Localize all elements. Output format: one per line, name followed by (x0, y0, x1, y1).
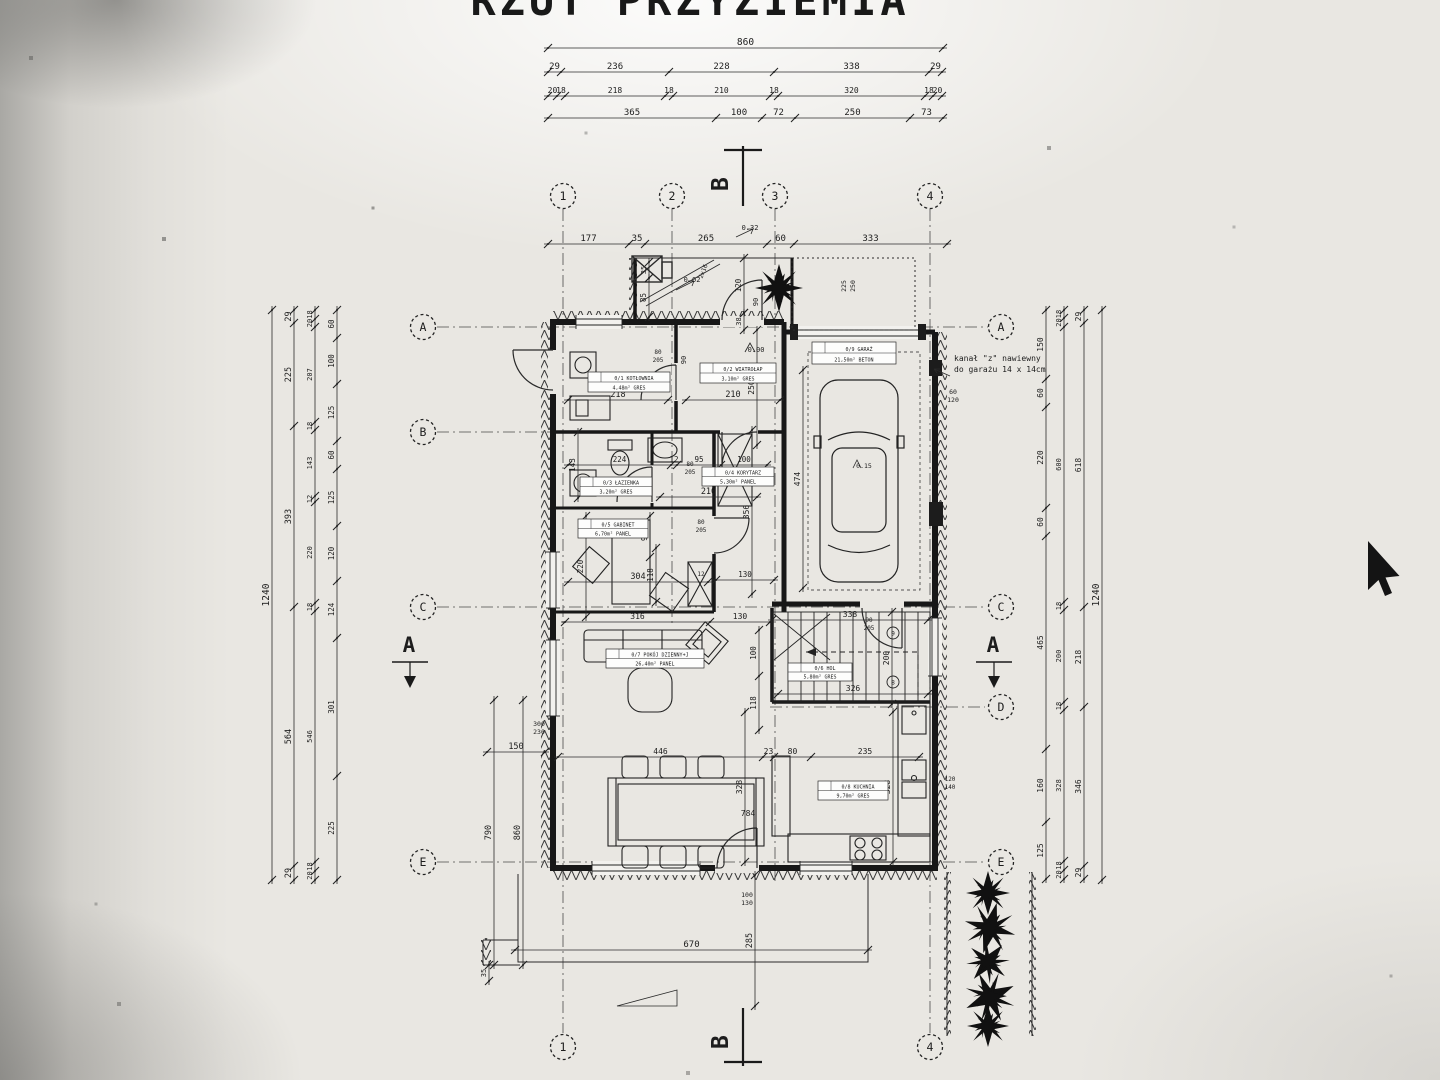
dim-label: 60 (775, 234, 786, 244)
dim-label: 356 (742, 505, 751, 520)
dim-node (1045, 507, 1047, 509)
room-label: 0/7 POKÓJ DZIENNY+J26,40m² PANEL (606, 649, 704, 668)
dim-label: 18 (306, 603, 314, 611)
dim-chain: 316130 (561, 612, 774, 626)
room-area: 5,30m² PANEL (720, 480, 756, 486)
dim-label: 465 (1036, 635, 1045, 650)
dim-node (314, 318, 316, 320)
dim-node (667, 399, 669, 401)
grid-bubble-label: 4 (927, 1040, 934, 1054)
dim-label: 207 (306, 368, 314, 381)
dim-node (1045, 406, 1047, 408)
dim-node (743, 312, 745, 314)
dim-node (271, 879, 273, 881)
dim-chain: 1240 (1091, 306, 1106, 884)
dim-label: 546 (306, 730, 314, 743)
dim-label: 210 (714, 86, 729, 95)
dim-node (891, 611, 893, 613)
dim-node (522, 699, 524, 701)
window-south-kitchen (800, 861, 852, 875)
dim-node (314, 870, 316, 872)
room-label: 0/2 WIATROŁAP3,10m² GRES (700, 363, 776, 383)
room-area: 3,20m² GRES (599, 490, 632, 496)
dim-node (547, 95, 549, 97)
dim-node (779, 399, 781, 401)
dim-label: 95 (694, 455, 703, 464)
dim-label: 210 (725, 390, 740, 400)
dim-label: 125 (327, 491, 336, 505)
dim-node (754, 874, 756, 876)
dim-label: 125 (1036, 843, 1045, 858)
grid-bubble-label: 4 (927, 189, 934, 203)
dim-node (941, 95, 943, 97)
dim-node (1083, 309, 1085, 311)
dim-chain: 328 (735, 708, 749, 866)
dim-label: 20 (1055, 870, 1063, 878)
dim-node (1063, 860, 1065, 862)
office-chair-2 (650, 573, 689, 612)
room-area: 9,70m² GRES (836, 794, 869, 800)
annotation-label: 80 (686, 461, 694, 468)
dim-node (946, 243, 948, 245)
dim-node (793, 243, 795, 245)
dim-label: 120 (327, 546, 336, 560)
dim-label: 100 (327, 354, 336, 368)
dim-label: 200 (1055, 650, 1063, 663)
annotation-label: 300 (533, 720, 545, 728)
annotation-label: 250 (849, 280, 857, 292)
dim-node (664, 95, 666, 97)
section-letter: A (987, 633, 1000, 657)
dim-label: 29 (284, 311, 294, 321)
dim-node (314, 501, 316, 503)
dim-label: 790 (484, 825, 494, 840)
dim-label: 150 (1036, 337, 1045, 352)
dim-chain: 1240 (261, 306, 276, 884)
dim-label: 12 (306, 495, 314, 503)
grid-bubble: A (989, 315, 1014, 340)
annotation-label: 225 (840, 280, 848, 292)
annotation-label: 80 (654, 349, 662, 356)
dim-label: 100 (737, 455, 751, 464)
grid-bubble-label: A (420, 320, 427, 334)
dim-node (493, 964, 495, 966)
dim-label: 333 (862, 234, 878, 244)
dim-chain: 201821818210183201820 (544, 86, 946, 100)
room-label: 0/4 KORYTARZ5,30m² PANEL (702, 467, 774, 486)
dim-node (761, 117, 763, 119)
annotation-label: 205 (696, 527, 707, 534)
dim-node (293, 425, 295, 427)
window-west-office (546, 552, 560, 608)
dim-label: 474 (793, 472, 802, 487)
dining-chairs (622, 756, 724, 868)
dim-node (336, 637, 338, 639)
cabinet-x (688, 562, 712, 606)
dim-label: 18 (306, 862, 314, 870)
dim-node (1063, 609, 1065, 611)
dim-node (514, 949, 516, 951)
grid-bubble: 4 (918, 184, 943, 209)
garage-gate (798, 326, 918, 339)
dim-chain: 2961821834629 (1074, 306, 1088, 883)
dim-label: 564 (284, 729, 294, 744)
dim-node (715, 579, 717, 581)
section-letter: A (403, 633, 416, 657)
dim-label: 670 (683, 940, 699, 950)
annotation-label: 205 (864, 625, 875, 632)
dim-label: 320 (844, 86, 859, 95)
dim-node (564, 95, 566, 97)
dim-chain: 182060018200183281820 (1055, 306, 1068, 883)
dim-node (567, 581, 569, 583)
room-label: 0/5 GABINET6,70m² PANEL (578, 519, 648, 538)
room-area: 3,10m² GRES (721, 377, 754, 383)
dim-node (1063, 601, 1065, 603)
conifer-entry (755, 264, 803, 312)
dim-node (766, 243, 768, 245)
dim-node (777, 693, 779, 695)
dim-node (1063, 709, 1065, 711)
dim-label: 35 (480, 969, 488, 977)
dim-node (744, 861, 746, 863)
dim-node (927, 619, 929, 621)
grid-bubble-label: E (420, 855, 427, 869)
generated-annotations: 8602923622833829201821818210183201820365… (261, 37, 1106, 1060)
dim-node (564, 621, 566, 623)
dim-node (1045, 821, 1047, 823)
dim-node (1083, 878, 1085, 880)
dim-chain: 2923622833829 (544, 62, 946, 76)
grid-bubble: E (989, 850, 1014, 875)
dim-node (773, 71, 775, 73)
dim-label: 160 (1036, 778, 1045, 793)
dim-label: 35 (640, 266, 648, 274)
dim-node (585, 616, 587, 618)
canopy-outline (792, 258, 915, 330)
grid-bubble-label: C (998, 600, 1005, 614)
dim-node (685, 399, 687, 401)
dim-node (314, 429, 316, 431)
dim-node (756, 329, 758, 331)
dim-node (756, 444, 758, 446)
dim-label: 100 (731, 108, 747, 118)
annotation-label: 100 (741, 891, 753, 899)
dim-node (336, 879, 338, 881)
chimney (632, 256, 672, 282)
dim-label: 18 (1055, 702, 1063, 710)
grid-bubble: C (989, 595, 1014, 620)
room-area: 21,50m² BETON (834, 358, 873, 364)
annotation-label: 0.02 (684, 276, 701, 284)
dim-node (709, 621, 711, 623)
dim-node (1083, 606, 1085, 608)
dim-node (668, 71, 670, 73)
dim-label: 18 (1055, 602, 1063, 610)
dim-node (1045, 378, 1047, 380)
dim-label: 60 (1036, 517, 1045, 527)
dim-label: 120 (734, 278, 743, 292)
dim-node (547, 243, 549, 245)
dim-node (744, 711, 746, 713)
dim-chain: 120 (734, 254, 748, 317)
dim-node (1083, 865, 1085, 867)
dim-node (314, 879, 316, 881)
dim-node (743, 329, 745, 331)
dim-label: 326 (846, 684, 861, 693)
dim-label: 130 (733, 612, 748, 621)
dim-label: 23 (764, 747, 774, 756)
dim-label: 18 (1055, 310, 1063, 318)
dim-node (336, 468, 338, 470)
dim-node (336, 580, 338, 582)
dim-node (672, 95, 674, 97)
dim-node (891, 703, 893, 705)
annotation-label: 230 (533, 728, 545, 736)
room-name: 0/5 GABINET (601, 523, 634, 529)
dim-label: 228 (713, 62, 729, 72)
dim-node (892, 861, 894, 863)
dim-chain: 1506022060465160125 (1036, 306, 1050, 883)
dim-label: 235 (858, 747, 873, 756)
dim-node (794, 117, 796, 119)
annotation-label: 9 (891, 631, 895, 638)
dim-label: 124 (327, 602, 336, 616)
dim-node (560, 71, 562, 73)
dim-node (802, 587, 804, 589)
dim-label: 210 (701, 487, 716, 497)
conifer-5 (967, 1005, 1009, 1047)
room-label: 0/9 GARAŻ21,50m² BETON (812, 342, 896, 364)
room-area: 5,80m² GRES (803, 675, 836, 681)
dim-node (751, 593, 753, 595)
dim-node (754, 1005, 756, 1007)
dim-node (649, 515, 651, 517)
dim-node (577, 497, 579, 499)
dim-label: 225 (327, 821, 336, 835)
room-label: 0/1 KOTŁOWNIA4,48m² GRES (588, 372, 670, 392)
grid-bubble: 1 (551, 184, 576, 209)
dim-node (557, 756, 559, 758)
dim-label: 118 (646, 568, 655, 582)
dim-label: 236 (607, 62, 623, 72)
dim-node (802, 369, 804, 371)
grid-bubble-label: 1 (560, 1040, 567, 1054)
section-letter: B (708, 1035, 734, 1049)
dim-chain: 670 (511, 940, 872, 954)
dim-label: 218 (1074, 650, 1083, 665)
dim-label: 20 (933, 86, 943, 95)
dim-node (941, 71, 943, 73)
dim-node (314, 326, 316, 328)
dim-node (655, 547, 657, 549)
dim-label: 860 (737, 37, 754, 48)
dim-node (1045, 748, 1047, 750)
dim-node (1063, 309, 1065, 311)
dim-label: 73 (921, 108, 932, 118)
dim-label: 393 (284, 509, 294, 524)
grid-bubble: D (989, 695, 1014, 720)
section-letter: B (708, 177, 734, 191)
annotation-label: 120 (945, 776, 956, 783)
annotation-label: 90 (752, 298, 760, 306)
dim-node (773, 579, 775, 581)
grid-bubble: 4 (918, 1035, 943, 1060)
annotation-label: 90 (865, 617, 873, 624)
dim-label: 285 (745, 933, 755, 948)
dim-label: 220 (306, 546, 314, 559)
dim-node (271, 309, 273, 311)
dim-node (648, 316, 650, 318)
dim-label: 446 (653, 747, 668, 756)
grid-bubble-label: D (998, 700, 1005, 714)
dim-label: 20 (306, 319, 314, 327)
dim-node (762, 756, 764, 758)
dim-node (628, 243, 630, 245)
dim-node (648, 277, 650, 279)
ramp-symbol (617, 990, 677, 1006)
dim-chain: 860 (544, 37, 947, 52)
fridge (902, 706, 926, 734)
grid-bubble-label: E (998, 855, 1005, 869)
grid-bubble: E (411, 850, 436, 875)
dim-node (1063, 326, 1065, 328)
dim-label: 72 (773, 108, 784, 118)
dim-label: 60 (1036, 388, 1045, 398)
dim-label: 18 (1055, 861, 1063, 869)
annotation-label: 8 (891, 680, 895, 687)
kitchen-sink (902, 760, 926, 798)
dim-node (707, 581, 709, 583)
dim-label: 118 (749, 696, 758, 710)
room-area: 26,40m² PANEL (635, 662, 674, 668)
dim-label: 346 (1074, 779, 1083, 794)
dim-node (676, 464, 678, 466)
dim-chain: 100118 (749, 626, 763, 734)
dim-node (1101, 309, 1103, 311)
dim-node (486, 751, 488, 753)
dim-label: 143 (568, 458, 577, 472)
annotation-label: 140 (945, 784, 956, 791)
dim-node (314, 602, 316, 604)
dim-node (867, 949, 869, 951)
dim-chain: 2922539356429 (284, 306, 298, 884)
dim-label: 220 (1036, 450, 1045, 465)
dim-label: 35 (632, 234, 643, 244)
dim-label: 316 (630, 612, 645, 621)
room-label: 0/3 ŁAZIENKA3,20m² GRES (580, 477, 652, 496)
room-area: 4,48m² GRES (612, 386, 645, 392)
dim-node (924, 95, 926, 97)
dim-label: 29 (1074, 312, 1083, 322)
dim-label: 18 (769, 86, 779, 95)
dim-node (336, 440, 338, 442)
dim-label: 130 (738, 570, 752, 579)
dim-label: 20 (306, 871, 314, 879)
dim-node (314, 861, 316, 863)
room-name: 0/3 ŁAZIENKA (603, 481, 639, 487)
dim-node (556, 95, 558, 97)
dim-label: 250 (844, 108, 860, 118)
dim-node (488, 980, 490, 982)
coffee-table (628, 668, 672, 712)
annotation-label: 0.32 (742, 224, 759, 232)
dim-node (771, 619, 773, 621)
grid-bubble: C (411, 595, 436, 620)
dim-label: 18 (306, 422, 314, 430)
annotation-label: 120 (947, 396, 959, 404)
room-label: 0/6 HOL5,80m² GRES (788, 663, 852, 681)
dim-node (577, 431, 579, 433)
room-label: 0/8 KUCHNIA9,70m² GRES (818, 781, 888, 800)
dim-label: 301 (327, 700, 336, 714)
room-name: 0/4 KORYTARZ (725, 471, 761, 477)
dim-label: 20 (1055, 318, 1063, 326)
dim-label: 220 (576, 559, 585, 573)
dim-node (1045, 878, 1047, 880)
grid-bubble: 2 (660, 184, 685, 209)
dim-chain: 18202071814312220185461820 (306, 306, 319, 884)
room-name: 0/8 KUCHNIA (841, 785, 874, 791)
annotation-label: 784 (741, 809, 756, 818)
grid-bubble-label: C (420, 600, 427, 614)
room-name: 0/2 WIATROŁAP (723, 367, 762, 373)
dim-label: 365 (624, 108, 640, 118)
dim-label: 265 (698, 234, 714, 244)
mouse-cursor (1368, 541, 1400, 596)
dim-node (758, 729, 760, 731)
dim-label: 143 (306, 457, 314, 470)
annotation-label: 12 (697, 571, 705, 578)
dim-node (644, 243, 646, 245)
dim-node (1045, 309, 1047, 311)
floor-plan-drawing: 8602923622833829201821818210183201820365… (0, 0, 1440, 1080)
dim-label: 328 (1055, 779, 1063, 792)
dim-node (766, 464, 768, 466)
dim-node (909, 117, 911, 119)
conifer-1 (966, 871, 1010, 915)
dim-chain: 150 (483, 742, 549, 756)
annotation-label: 0.00 (748, 346, 765, 354)
annotation-label: do garażu 14 x 14cm (954, 365, 1046, 374)
dim-label: 338 (843, 62, 859, 72)
dim-label: 338 (843, 610, 858, 619)
dim-label: 860 (513, 825, 523, 840)
dim-label: 38 (735, 317, 743, 325)
dim-node (336, 337, 338, 339)
dim-node (1101, 879, 1103, 881)
dim-chain: 200 (882, 608, 896, 708)
dim-node (715, 117, 717, 119)
dim-node (670, 464, 672, 466)
annotation-label: 90 (680, 356, 688, 364)
dim-chain: 1773526560333 (544, 234, 951, 248)
dim-node (942, 47, 944, 49)
dim-node (756, 496, 758, 498)
dim-node (892, 711, 894, 713)
dim-node (758, 675, 760, 677)
dim-chain: 35 (640, 258, 653, 282)
dim-node (522, 964, 524, 966)
dim-node (655, 601, 657, 603)
grid-bubble: 1 (551, 1035, 576, 1060)
dim-label: 60 (327, 450, 336, 460)
dim-label: 200 (882, 651, 891, 666)
dim-label: 100 (749, 646, 758, 660)
dim-node (758, 629, 760, 631)
dim-node (1063, 869, 1065, 871)
dim-label: 618 (1074, 458, 1083, 473)
